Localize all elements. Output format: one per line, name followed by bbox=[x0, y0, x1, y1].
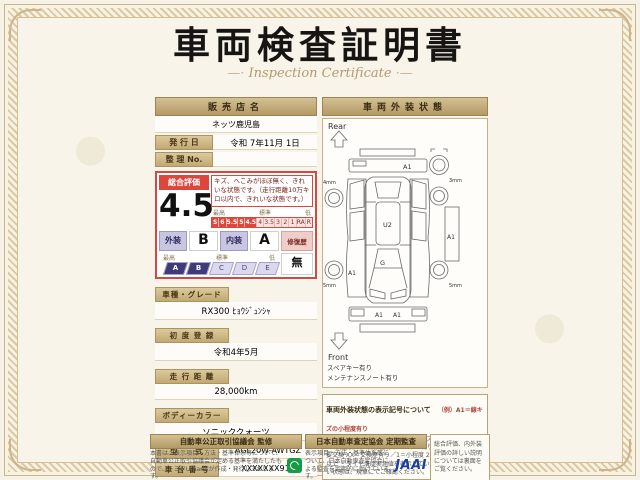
overall-score: 4.5 bbox=[159, 190, 209, 223]
car-diagram-area: Rear Front A1 U2 G A1 A1 A1 A1 4mm 3mm 5… bbox=[323, 119, 487, 362]
jaai-header: 日本自動車査定協会 定期監査 bbox=[305, 434, 427, 449]
back-side-note: 総合評価、内外装評価の詳しい説明については裏面をご覧ください。 bbox=[430, 434, 490, 480]
vehicle-info-column: 販売店名 ネッツ鹿児島 発 行 日 令和 7年11月 1日 整 理 No. 総合… bbox=[155, 97, 317, 480]
spare-key-note: スペアキー有り bbox=[327, 364, 487, 374]
grade-cell: C bbox=[209, 262, 234, 275]
equipment-notes: スペアキー有り メンテナンスノート有り bbox=[323, 362, 487, 387]
overall-evaluation-box: 総合評価 4.5 キズ、へこみがほぼ無く、きれいな状態です。（走行距離10万キロ… bbox=[155, 171, 317, 279]
scale-cell: 4 bbox=[257, 218, 264, 227]
maintenance-note: メンテナンスノート有り bbox=[327, 374, 487, 384]
scale-cell: 3.5 bbox=[264, 218, 275, 227]
scale-cell: RA bbox=[297, 218, 306, 227]
certificate-subtitle: Inspection Certificate bbox=[0, 66, 640, 81]
exterior-condition-column: 車両外装状態 bbox=[322, 97, 488, 480]
grade-cell: D bbox=[232, 262, 257, 275]
tire-tread-rear-right: 3mm bbox=[449, 178, 462, 184]
evaluation-detail-block: キズ、へこみがほぼ無く、きれいな状態です。（走行距離10万キロ以内で、きれいな状… bbox=[211, 175, 313, 228]
grade-cell: E bbox=[255, 262, 280, 275]
scale-cell: 2 bbox=[282, 218, 289, 227]
evaluation-comment: キズ、へこみがほぼ無く、きれいな状態です。（走行距離10万キロ以内で、きれいな状… bbox=[211, 175, 313, 207]
mark-left-side: A1 bbox=[348, 270, 356, 277]
scale-cell-active: 4.5 bbox=[245, 218, 257, 227]
mark-front-bumper-2: A1 bbox=[393, 312, 401, 319]
grade-scale-row: 最高 標準 低 A B C D E 無 bbox=[159, 253, 313, 275]
model-grade-value: RX300 ﾋｮｳｼﾞｭﾝｼｬ bbox=[155, 302, 317, 320]
grade-scale: 最高 標準 低 A B C D E bbox=[159, 253, 279, 275]
scale-label-mid: 標準 bbox=[259, 208, 271, 217]
exterior-condition-panel: Rear Front A1 U2 G A1 A1 A1 A1 4mm 3mm 5… bbox=[322, 118, 488, 388]
evaluation-top: 総合評価 4.5 キズ、へこみがほぼ無く、きれいな状態です。（走行距離10万キロ… bbox=[159, 175, 313, 228]
certification-footer: 自動車公正取引協議会 監修 本書は、表示項目・方法・基準体系等について、自動車公… bbox=[150, 434, 490, 480]
grade-cell-active: B bbox=[186, 262, 211, 275]
mileage-field: 走 行 距 離 28,000km bbox=[155, 364, 317, 400]
scale-cell: 5 bbox=[238, 218, 245, 227]
mileage-label: 走 行 距 離 bbox=[155, 369, 229, 384]
inspection-certificate: 車両検査証明書 Inspection Certificate 販売店名 ネッツ鹿… bbox=[0, 0, 640, 480]
fair-trade-text: 本書は、表示項目・方法・基準体系等について、自動車公正取引協議会が定める基準を満… bbox=[150, 450, 285, 480]
tire-tread-front-right: 5mm bbox=[449, 283, 462, 289]
reference-no-value bbox=[213, 152, 317, 167]
exterior-grade: B bbox=[189, 231, 218, 251]
tire-tread-front-left: 5mm bbox=[323, 283, 336, 289]
mark-roof: U2 bbox=[383, 221, 392, 229]
model-grade-field: 車種・グレード RX300 ﾋｮｳｼﾞｭﾝｼｬ bbox=[155, 282, 317, 320]
corner-flourish bbox=[599, 439, 631, 471]
scale-cell: S bbox=[212, 218, 219, 227]
grade-scale-cells: A B C D E bbox=[159, 262, 279, 275]
rear-direction-label: Rear bbox=[328, 122, 347, 131]
scale-cell: 3 bbox=[275, 218, 282, 227]
tire-tread-rear-left: 4mm bbox=[323, 180, 336, 186]
store-name-value: ネッツ鹿児島 bbox=[155, 116, 317, 133]
issue-date-row: 発 行 日 令和 7年11月 1日 bbox=[155, 135, 317, 150]
front-direction-label: Front bbox=[328, 353, 348, 362]
scale-cell: 1 bbox=[289, 218, 296, 227]
first-registration-field: 初 度 登 録 令和4年5月 bbox=[155, 323, 317, 361]
reference-no-label: 整 理 No. bbox=[155, 152, 213, 167]
mark-front-bumper-1: A1 bbox=[375, 312, 383, 319]
title-block: 車両検査証明書 Inspection Certificate bbox=[0, 26, 640, 81]
exterior-interior-row: 外装 B 内装 A 修復歴 bbox=[159, 231, 313, 251]
jaai-section: 日本自動車査定協会 定期監査 表示項目・方法・基準体系等について、日本自動車査定… bbox=[305, 434, 427, 480]
scale-cell: 6 bbox=[219, 218, 226, 227]
certificate-title: 車両検査証明書 bbox=[0, 26, 640, 65]
grade-cell-active: A bbox=[163, 262, 188, 275]
scale-label-high: 最高 bbox=[163, 253, 175, 262]
fair-trade-council-icon bbox=[287, 458, 302, 473]
corner-flourish bbox=[9, 439, 41, 471]
issue-date-value: 令和 7年11月 1日 bbox=[213, 135, 317, 150]
legend-title: 車両外装状態の表示記号について bbox=[326, 406, 431, 414]
fair-trade-body: 本書は、表示項目・方法・基準体系等について、自動車公正取引協議会が定める基準を満… bbox=[150, 450, 302, 480]
reference-no-row: 整 理 No. bbox=[155, 152, 317, 167]
scale-label-mid: 標準 bbox=[216, 253, 228, 262]
evaluation-score-block: 総合評価 4.5 bbox=[159, 175, 209, 228]
score-scale-labels: 最高 標準 低 bbox=[211, 208, 313, 217]
border-inner-line bbox=[17, 17, 623, 463]
scale-label-low: 低 bbox=[305, 208, 311, 217]
first-registration-value: 令和4年5月 bbox=[155, 343, 317, 361]
car-diagram: Rear Front A1 U2 G A1 A1 A1 A1 4mm 3mm 5… bbox=[323, 119, 489, 362]
repair-history-label: 修復歴 bbox=[281, 231, 313, 251]
back-side-note-text: 総合評価、内外装評価の詳しい説明については裏面をご覧ください。 bbox=[434, 441, 486, 473]
interior-label: 内装 bbox=[220, 231, 248, 251]
issue-date-label: 発 行 日 bbox=[155, 135, 213, 150]
jaai-text: 表示項目・方法・基準体系等について、日本自動車査定協会による監査を定期的に受けて… bbox=[305, 450, 393, 480]
scale-label-high: 最高 bbox=[213, 208, 225, 217]
fair-trade-section: 自動車公正取引協議会 監修 本書は、表示項目・方法・基準体系等について、自動車公… bbox=[150, 434, 302, 480]
body-color-label: ボディーカラー bbox=[155, 408, 229, 423]
scale-cell: 5.5 bbox=[227, 218, 239, 227]
exterior-condition-header: 車両外装状態 bbox=[322, 97, 488, 116]
mileage-value: 28,000km bbox=[155, 384, 317, 400]
grade-scale-labels: 最高 標準 低 bbox=[159, 253, 279, 262]
repair-history-value: 無 bbox=[281, 253, 313, 275]
fair-trade-header: 自動車公正取引協議会 監修 bbox=[150, 434, 302, 449]
jaai-logo: JAAI bbox=[395, 458, 427, 473]
model-grade-label: 車種・グレード bbox=[155, 287, 229, 302]
store-name-header: 販売店名 bbox=[155, 97, 317, 116]
mark-hood: G bbox=[380, 259, 385, 267]
interior-grade: A bbox=[250, 231, 279, 251]
mark-right-side: A1 bbox=[447, 234, 455, 241]
scale-cell: R bbox=[306, 218, 312, 227]
mark-rear-bumper: A1 bbox=[403, 163, 412, 171]
first-registration-label: 初 度 登 録 bbox=[155, 328, 229, 343]
score-scale: S 6 5.5 5 4.5 4 3.5 3 2 1 RA R bbox=[211, 217, 313, 228]
jaai-body: 表示項目・方法・基準体系等について、日本自動車査定協会による監査を定期的に受けて… bbox=[305, 450, 427, 480]
exterior-label: 外装 bbox=[159, 231, 187, 251]
scale-label-low: 低 bbox=[269, 253, 275, 262]
